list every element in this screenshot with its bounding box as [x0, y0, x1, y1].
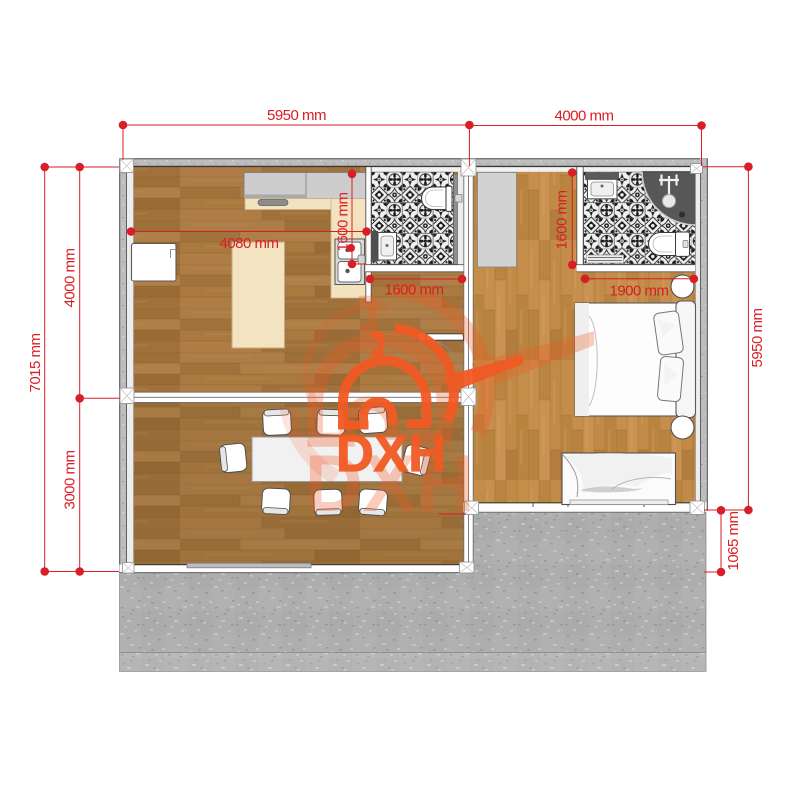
svg-text:5950 mm: 5950 mm: [267, 107, 326, 124]
svg-text:1900 mm: 1900 mm: [609, 283, 668, 300]
svg-text:4000 mm: 4000 mm: [554, 108, 613, 125]
svg-text:1600 mm: 1600 mm: [335, 192, 352, 251]
svg-text:3000 mm: 3000 mm: [62, 450, 79, 509]
svg-text:4000 mm: 4000 mm: [62, 248, 79, 307]
svg-text:DXH: DXH: [336, 425, 446, 483]
svg-text:5950 mm: 5950 mm: [749, 308, 766, 367]
svg-text:1600 mm: 1600 mm: [554, 190, 571, 249]
svg-text:4080 mm: 4080 mm: [219, 235, 278, 252]
svg-text:1600 mm: 1600 mm: [384, 282, 443, 299]
svg-text:7015 mm: 7015 mm: [27, 333, 44, 392]
svg-text:1065 mm: 1065 mm: [725, 511, 742, 570]
